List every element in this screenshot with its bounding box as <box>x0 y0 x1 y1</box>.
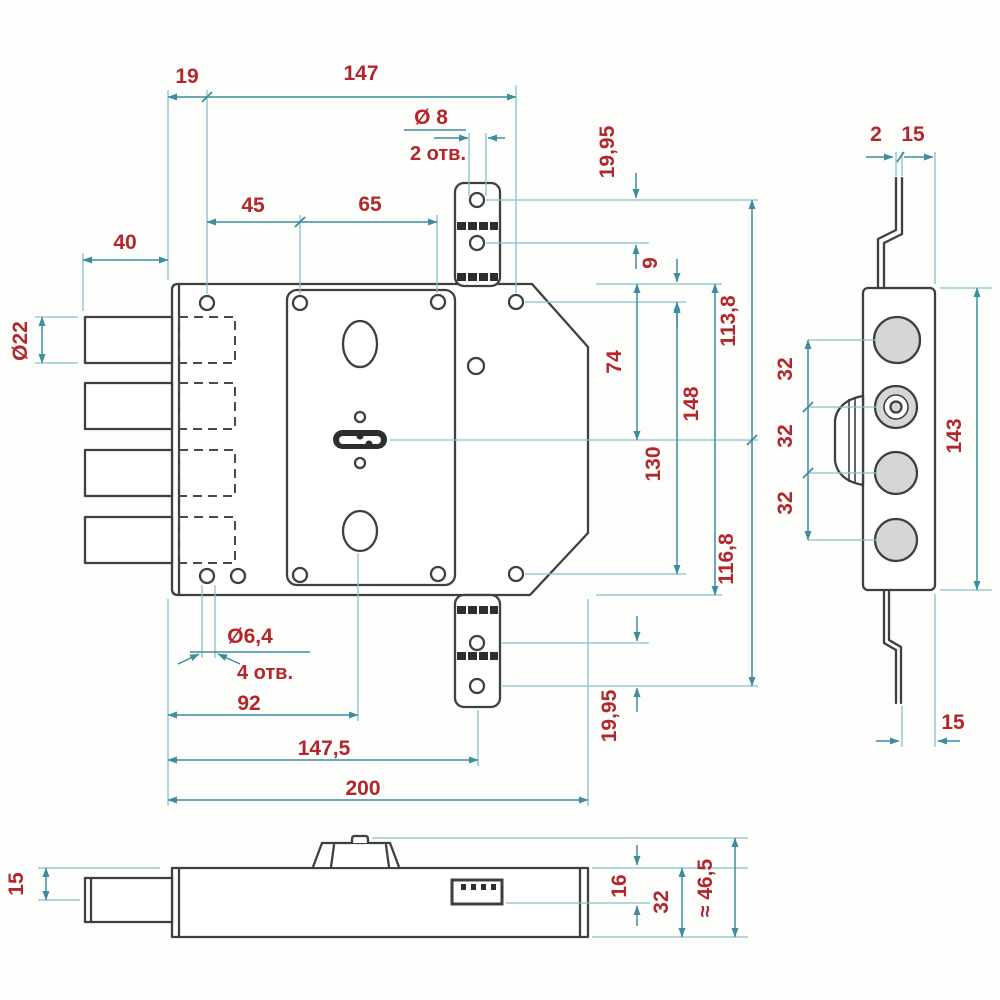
deadbolt-2 <box>85 383 172 429</box>
dim-mount-hole-dia: Ø6,4 <box>227 625 273 648</box>
bottom-view <box>85 836 588 937</box>
deadbolt-4 <box>85 517 172 563</box>
deadbolt-1 <box>85 317 172 363</box>
dim-strip-offset-top: 15 <box>901 123 925 146</box>
cylinder-hole-bottom <box>343 511 377 551</box>
case-mount-hole <box>509 295 523 309</box>
dim-top-hole-dia: Ø 8 <box>414 106 448 129</box>
bolt-end-1 <box>874 317 920 363</box>
bottom-bracket-hole-1 <box>470 636 484 650</box>
keyhole-notch <box>357 433 364 440</box>
case-mount-hole <box>231 569 245 583</box>
keyhole-notch <box>366 441 373 448</box>
cylinder-pin <box>891 402 902 413</box>
dim-bolt-pitch-2: 32 <box>774 424 797 447</box>
dim-mount-hole-count: 4 отв. <box>237 662 293 684</box>
front-view <box>85 183 588 707</box>
plate-screw-hole <box>293 568 307 582</box>
dim-overall-depth: ≈ 46,5 <box>694 859 717 918</box>
dim-bolt-length: 40 <box>113 231 136 254</box>
dim-top-span: 147 <box>343 62 378 85</box>
dim-faceplate-height: 143 <box>943 418 966 453</box>
dim-body-width: 200 <box>345 777 380 800</box>
dim-edge-to-hole: 9 <box>639 257 662 269</box>
bottom-bracket-hole-2 <box>470 679 484 693</box>
mechanism-hole <box>468 358 484 374</box>
case-mount-hole <box>200 569 214 583</box>
dim-to-cylinder: 92 <box>237 692 260 715</box>
dim-bolt-dia: Ø22 <box>9 321 32 361</box>
dim-top-offset: 19 <box>175 65 198 88</box>
dim-center-to-top-edge: 74 <box>603 350 626 374</box>
dim-plate-hole-offset: 45 <box>241 194 265 217</box>
case-mount-hole <box>509 567 523 581</box>
dim-body-height: 148 <box>680 386 703 421</box>
dim-strip-offset-bottom: 15 <box>941 711 965 734</box>
dim-plate-hole-span: 65 <box>358 193 382 216</box>
strike-box <box>452 880 502 904</box>
pin-hole <box>355 458 365 468</box>
dim-strike-depth: 16 <box>608 874 631 897</box>
cap-knob <box>352 836 368 843</box>
mount-strip-top <box>884 178 902 288</box>
plate-screw-hole <box>431 567 445 581</box>
deadbolt-3 <box>85 450 172 496</box>
cylinder-hole-top <box>343 321 377 367</box>
pin-hole <box>355 412 365 422</box>
dim-top-bracket-gap: 19,95 <box>596 125 619 178</box>
dim-side-hole-span: 130 <box>642 446 665 481</box>
dim-bottom-bracket-gap: 19,95 <box>598 689 621 742</box>
dim-case-depth: 32 <box>650 890 673 913</box>
bolt-profile <box>85 878 172 922</box>
top-bracket-hole-2 <box>470 236 484 250</box>
dim-center-to-top-hole: 113,8 <box>717 295 740 347</box>
dim-bolt-pitch-1: 32 <box>774 357 797 380</box>
dim-to-bracket: 147,5 <box>298 737 351 760</box>
bolt-end-3 <box>875 519 917 561</box>
dim-strip-thickness: 2 <box>870 123 882 146</box>
bolt-end-2 <box>875 452 917 494</box>
top-bracket-hole-1 <box>470 193 484 207</box>
side-view <box>835 178 935 703</box>
plate-screw-hole <box>293 296 307 310</box>
dim-bolt-axis-offset: 15 <box>5 872 28 896</box>
mount-strip-top <box>878 178 896 288</box>
dim-top-hole-count: 2 отв. <box>410 143 466 165</box>
case-mount-hole <box>200 296 214 310</box>
dim-center-to-bottom-hole: 116,8 <box>715 533 738 585</box>
dim-bolt-pitch-3: 32 <box>774 491 797 514</box>
plate-screw-hole <box>431 295 445 309</box>
lock-drawing: 19 147 Ø 8 2 отв. 45 65 40 Ø22 19,95 9 1… <box>0 0 1000 1000</box>
technical-drawing-canvas: 19 147 Ø 8 2 отв. 45 65 40 Ø22 19,95 9 1… <box>0 0 1000 1000</box>
